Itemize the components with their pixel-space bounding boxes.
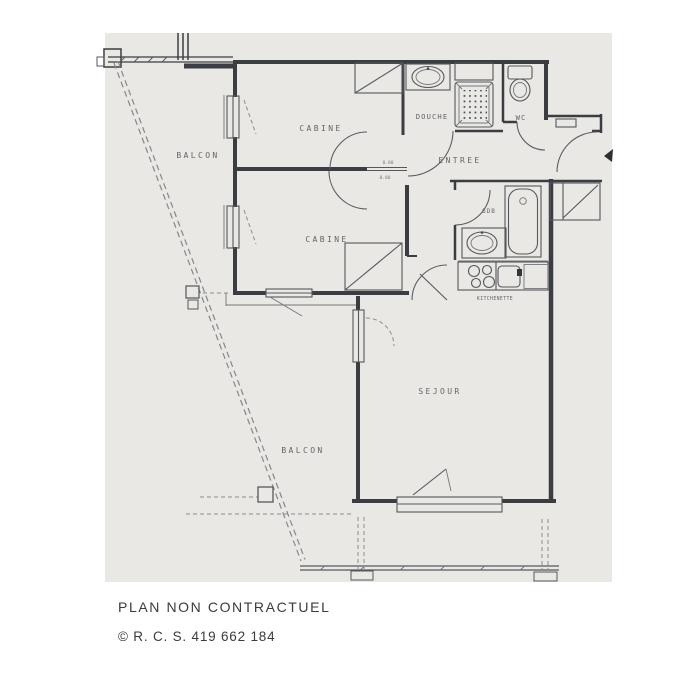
room-label-balcon-bottom: BALCON [281, 446, 324, 455]
room-label-entree: ENTREE [438, 156, 481, 165]
room-label-kitchenette: KITCHENETTE [477, 296, 513, 302]
room-label-sejour: SEJOUR [418, 387, 461, 396]
door-dimension-bottom: 0.80 [380, 175, 391, 181]
plan-disclaimer-text: PLAN NON CONTRACTUEL [118, 599, 330, 615]
copyright-rcs-text: © R. C. S. 419 662 184 [118, 629, 275, 644]
room-label-sdb: SDB [482, 208, 496, 215]
room-label-wc: WC [516, 113, 527, 122]
room-label-cabine-bottom: CABINE [305, 235, 348, 244]
room-label-balcon-top: BALCON [176, 151, 219, 160]
room-label-cabine-top: CABINE [299, 124, 342, 133]
page: BALCON CABINE CABINE DOUCHE WC ENTREE SD… [0, 0, 700, 700]
room-label-douche: DOUCHE [416, 112, 449, 121]
floor-plan-svg: BALCON CABINE CABINE DOUCHE WC ENTREE SD… [0, 0, 700, 700]
door-dimension-top: 0.80 [383, 160, 394, 166]
